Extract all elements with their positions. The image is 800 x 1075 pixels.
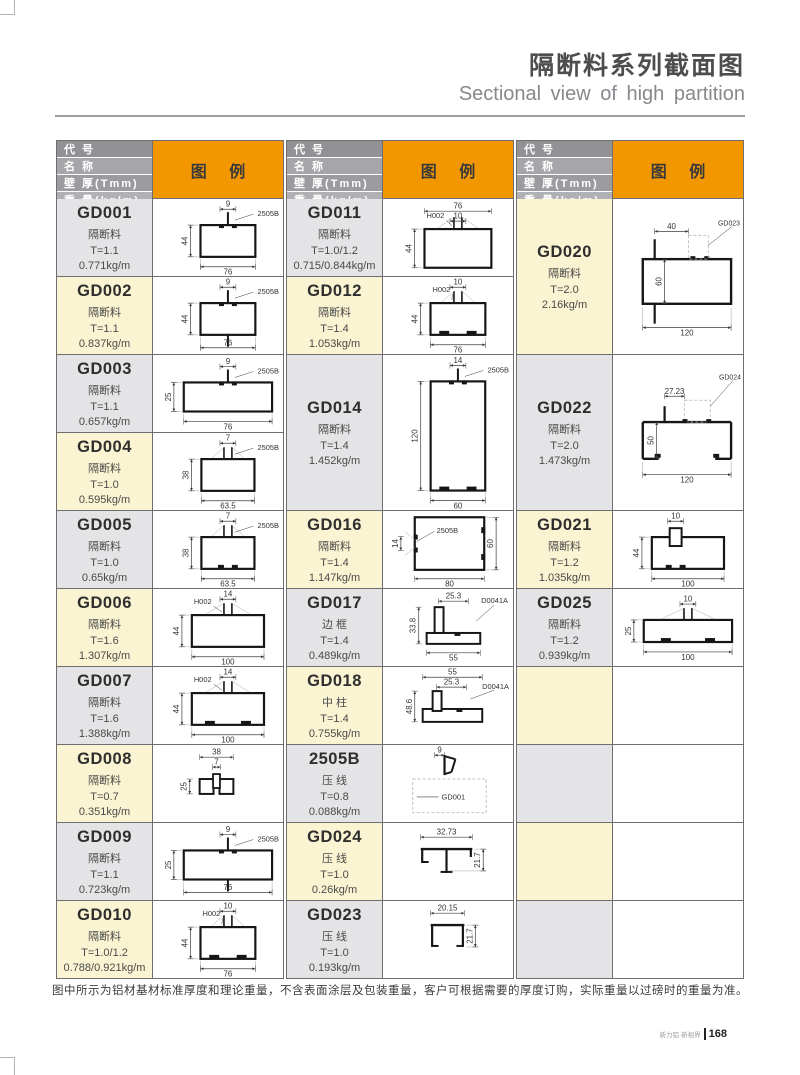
product-weight: 0.595kg/m [79, 494, 130, 506]
page-corner-mark-top-left [0, 0, 15, 15]
table-row: GD021隔断料T=1.21.035kg/m4410010 [517, 510, 743, 588]
product-code: GD011 [308, 204, 362, 223]
table-row [517, 822, 743, 900]
svg-text:2505B: 2505B [258, 835, 280, 844]
brand-text: 新力铝·新视界 [659, 1029, 700, 1039]
product-weight: 1.053kg/m [309, 338, 360, 350]
svg-text:76: 76 [224, 422, 233, 431]
table-row: GD009隔断料T=1.10.723kg/m257692505B [57, 822, 283, 900]
profile-table: 代 号名 称壁 厚(Tmm)重 量(kg/m)图 例GD001隔断料T=1.10… [56, 140, 744, 979]
table-row [517, 900, 743, 978]
product-thickness: T=1.4 [320, 557, 348, 569]
svg-text:2505B: 2505B [258, 367, 280, 376]
product-info-cell: GD003隔断料T=1.10.657kg/m [57, 355, 153, 432]
profile-drawing-cell: 12060142505B [383, 355, 513, 510]
product-weight: 0.65kg/m [82, 572, 127, 584]
product-name: 隔断料 [88, 850, 121, 866]
profile-column-2: 代 号名 称壁 厚(Tmm)重 量(kg/m)图 例GD011隔断料T=1.0/… [286, 140, 514, 979]
column-header-label: 名 称 [287, 158, 382, 175]
product-info-cell: GD023压 线T=1.00.193kg/m [287, 901, 383, 978]
profile-drawing-GD020: GD0234060120 [613, 199, 743, 354]
column-header-label: 代 号 [287, 141, 382, 158]
page-number: 168 [704, 1028, 727, 1040]
product-thickness: T=0.7 [90, 791, 118, 803]
svg-text:38: 38 [212, 748, 221, 757]
svg-text:55: 55 [448, 668, 457, 677]
column-header-labels: 代 号名 称壁 厚(Tmm)重 量(kg/m) [57, 141, 153, 198]
product-name: 隔断料 [88, 694, 121, 710]
column-header: 代 号名 称壁 厚(Tmm)重 量(kg/m)图 例 [57, 141, 283, 198]
product-info-cell: GD018中 柱T=1.40.755kg/m [287, 667, 383, 744]
profile-drawing-cell: 38725 [153, 745, 283, 822]
profile-drawing-GD007: 4410014H002 [153, 667, 283, 744]
profile-drawing-GD008: 38725 [153, 745, 283, 822]
svg-text:GD024: GD024 [719, 374, 741, 381]
product-code: GD001 [77, 204, 132, 223]
product-thickness: T=1.1 [90, 245, 118, 257]
svg-text:38: 38 [181, 470, 190, 479]
product-weight: 1.452kg/m [309, 455, 360, 467]
product-code: GD012 [307, 282, 362, 301]
svg-text:44: 44 [181, 938, 190, 947]
product-weight: 1.388kg/m [79, 728, 130, 740]
profile-drawing-2505B: 9GD001 [383, 745, 513, 822]
svg-text:10: 10 [454, 278, 463, 287]
table-row: GD002隔断料T=1.10.837kg/m447692505B [57, 276, 283, 354]
column-header-label: 名 称 [517, 158, 612, 175]
product-weight: 0.837kg/m [79, 338, 130, 350]
product-code: GD010 [77, 906, 132, 925]
product-name: 隔断料 [88, 460, 121, 476]
product-code: GD004 [77, 438, 132, 457]
profile-drawing-GD011: 441076H002 [383, 199, 513, 276]
table-row: GD001隔断料T=1.10.771kg/m447692505B [57, 198, 283, 276]
svg-text:21.7: 21.7 [473, 852, 482, 867]
svg-text:D0041A: D0041A [481, 596, 508, 605]
table-row: 2505B压 线T=0.80.088kg/m9GD001 [287, 744, 513, 822]
svg-text:25: 25 [164, 860, 173, 869]
profile-drawing-cell: 441076H002 [383, 199, 513, 276]
profile-drawing-cell: 2510010 [613, 589, 743, 666]
svg-text:100: 100 [221, 658, 235, 666]
product-thickness: T=1.4 [320, 713, 348, 725]
table-row: GD008隔断料T=0.70.351kg/m38725 [57, 744, 283, 822]
product-name: 隔断料 [88, 928, 121, 944]
svg-text:D0041A: D0041A [482, 682, 509, 691]
product-code: GD009 [77, 828, 132, 847]
product-name: 隔断料 [88, 226, 121, 242]
svg-text:44: 44 [632, 548, 641, 557]
product-info-cell: GD001隔断料T=1.10.771kg/m [57, 199, 153, 276]
product-name: 压 线 [322, 772, 347, 788]
profile-column-3: 代 号名 称壁 厚(Tmm)重 量(kg/m)图 例GD020隔断料T=2.02… [516, 140, 744, 979]
product-weight: 0.489kg/m [309, 650, 360, 662]
legend-header: 图 例 [613, 141, 743, 198]
svg-text:7: 7 [214, 758, 218, 767]
svg-text:9: 9 [226, 200, 231, 209]
svg-text:38: 38 [181, 548, 190, 557]
product-info-cell: GD009隔断料T=1.10.723kg/m [57, 823, 153, 900]
product-thickness: T=1.1 [90, 869, 118, 881]
svg-text:44: 44 [181, 236, 190, 245]
product-name: 中 柱 [322, 694, 347, 710]
profile-drawing-GD010: 447610H002 [153, 901, 283, 978]
svg-text:7: 7 [226, 434, 230, 443]
svg-text:14: 14 [224, 590, 233, 599]
product-code: GD023 [307, 906, 362, 925]
product-name: 隔断料 [318, 304, 351, 320]
svg-text:76: 76 [454, 346, 463, 354]
profile-drawing-cell: 447692505B [153, 277, 283, 354]
product-thickness: T=1.0 [90, 557, 118, 569]
profile-drawing-cell: 257692505B [153, 355, 283, 432]
profile-drawing-cell [613, 823, 743, 900]
profile-drawing-GD018: 5525.3D0041A48.6 [383, 667, 513, 744]
product-code: GD024 [307, 828, 362, 847]
svg-text:GD023: GD023 [718, 220, 740, 227]
product-info-cell: GD002隔断料T=1.10.837kg/m [57, 277, 153, 354]
svg-text:44: 44 [172, 626, 181, 635]
product-info-cell: GD004隔断料T=1.00.595kg/m [57, 433, 153, 510]
table-row: GD016隔断料T=1.41.147kg/m142505B6080 [287, 510, 513, 588]
svg-text:H002: H002 [194, 597, 212, 606]
product-thickness: T=1.0 [320, 869, 348, 881]
svg-text:33.8: 33.8 [409, 617, 418, 633]
product-info-cell [517, 667, 613, 744]
product-thickness: T=1.6 [90, 713, 118, 725]
table-row: GD025隔断料T=1.20.939kg/m2510010 [517, 588, 743, 666]
profile-drawing-cell: 25.3D0041A33.855 [383, 589, 513, 666]
product-code: GD022 [537, 399, 592, 418]
product-info-cell: GD011隔断料T=1.0/1.20.715/0.844kg/m [287, 199, 383, 276]
svg-text:7: 7 [226, 512, 230, 521]
profile-drawing-GD023: 20.1521.7 [383, 901, 513, 978]
product-code: GD016 [307, 516, 362, 535]
product-info-cell: GD005隔断料T=1.00.65kg/m [57, 511, 153, 588]
product-info-cell: GD024压 线T=1.00.26kg/m [287, 823, 383, 900]
table-row: GD024压 线T=1.00.26kg/m32.7321.7 [287, 822, 513, 900]
product-info-cell [517, 901, 613, 978]
svg-text:50: 50 [647, 435, 656, 444]
product-code: GD018 [307, 672, 362, 691]
svg-text:9: 9 [226, 825, 231, 834]
product-weight: 0.755kg/m [309, 728, 360, 740]
product-weight: 0.193kg/m [309, 962, 360, 974]
svg-text:10: 10 [684, 595, 693, 604]
product-weight: 0.657kg/m [79, 416, 130, 428]
svg-text:10: 10 [671, 512, 680, 521]
svg-text:44: 44 [411, 314, 420, 323]
product-weight: 0.088kg/m [309, 806, 360, 818]
product-thickness: T=1.1 [90, 401, 118, 413]
svg-text:2505B: 2505B [258, 209, 280, 218]
profile-drawing-cell: 4410014H002 [153, 667, 283, 744]
page-title: 隔断料系列截面图 [55, 46, 745, 82]
product-weight: 1.473kg/m [539, 455, 590, 467]
product-name: 隔断料 [548, 538, 581, 554]
svg-text:76: 76 [224, 268, 233, 276]
profile-column-1: 代 号名 称壁 厚(Tmm)重 量(kg/m)图 例GD001隔断料T=1.10… [56, 140, 284, 979]
svg-text:76: 76 [454, 202, 463, 211]
table-row: GD023压 线T=1.00.193kg/m20.1521.7 [287, 900, 513, 978]
product-thickness: T=1.0 [90, 479, 118, 491]
table-row: GD014隔断料T=1.41.452kg/m12060142505B [287, 354, 513, 510]
product-weight: 1.307kg/m [79, 650, 130, 662]
product-name: 隔断料 [318, 226, 351, 242]
svg-text:60: 60 [454, 501, 463, 510]
page-footer: 新力铝·新视界 168 [659, 1028, 727, 1040]
table-row [517, 666, 743, 744]
product-name: 隔断料 [548, 421, 581, 437]
product-weight: 0.939kg/m [539, 650, 590, 662]
product-name: 压 线 [322, 850, 347, 866]
svg-text:25: 25 [624, 626, 633, 635]
column-header-label: 代 号 [57, 141, 152, 158]
product-name: 隔断料 [88, 538, 121, 554]
product-thickness: T=2.0 [550, 284, 578, 296]
product-code: GD006 [77, 594, 132, 613]
profile-drawing-cell: 3863.572505B [153, 433, 283, 510]
product-code: GD014 [307, 399, 362, 418]
product-thickness: T=2.0 [550, 440, 578, 452]
svg-text:21.7: 21.7 [465, 928, 474, 943]
product-info-cell: 2505B压 线T=0.80.088kg/m [287, 745, 383, 822]
profile-drawing-cell: 4410014H002 [153, 589, 283, 666]
profile-drawing-cell: 447610H002 [153, 901, 283, 978]
svg-text:9: 9 [226, 278, 231, 287]
profile-drawing-cell [613, 745, 743, 822]
profile-drawing-GD001: 447692505B [153, 199, 283, 276]
svg-text:40: 40 [667, 222, 676, 231]
profile-drawing-GD021: 4410010 [613, 511, 743, 588]
svg-text:100: 100 [221, 736, 235, 744]
product-weight: 0.771kg/m [79, 260, 130, 272]
footer-note: 图中所示为铝材基材标准厚度和理论重量，不含表面涂层及包装重量，客户可根据需要的厚… [0, 982, 800, 998]
svg-text:2505B: 2505B [258, 443, 280, 452]
product-weight: 2.16kg/m [542, 299, 587, 311]
product-thickness: T=1.0/1.2 [81, 947, 128, 959]
product-info-cell: GD007隔断料T=1.61.388kg/m [57, 667, 153, 744]
product-code: GD003 [77, 360, 132, 379]
table-row: GD012隔断料T=1.41.053kg/m447610H002 [287, 276, 513, 354]
product-name: 隔断料 [318, 421, 351, 437]
product-thickness: T=1.4 [320, 440, 348, 452]
table-row: GD011隔断料T=1.0/1.20.715/0.844kg/m441076H0… [287, 198, 513, 276]
column-header-label: 代 号 [517, 141, 612, 158]
profile-drawing-GD012: 447610H002 [383, 277, 513, 354]
product-thickness: T=1.1 [90, 323, 118, 335]
product-code: GD007 [77, 672, 132, 691]
legend-header: 图 例 [383, 141, 513, 198]
product-name: 隔断料 [88, 304, 121, 320]
profile-drawing-cell: GD02427.2350120 [613, 355, 743, 510]
product-code: GD017 [307, 594, 362, 613]
svg-text:H002: H002 [194, 675, 212, 684]
table-row [517, 744, 743, 822]
profile-drawing-cell: 447610H002 [383, 277, 513, 354]
legend-header: 图 例 [153, 141, 283, 198]
svg-text:100: 100 [681, 653, 695, 662]
svg-text:25: 25 [180, 781, 189, 790]
table-row: GD018中 柱T=1.40.755kg/m5525.3D0041A48.6 [287, 666, 513, 744]
profile-drawing-GD024: 32.7321.7 [383, 823, 513, 900]
svg-text:32.73: 32.73 [437, 828, 457, 837]
product-info-cell: GD021隔断料T=1.21.035kg/m [517, 511, 613, 588]
profile-drawing-GD022: GD02427.2350120 [613, 355, 743, 510]
product-code: GD005 [77, 516, 132, 535]
product-name: 隔断料 [88, 382, 121, 398]
table-row: GD003隔断料T=1.10.657kg/m257692505B [57, 354, 283, 432]
svg-text:55: 55 [449, 654, 458, 663]
profile-drawing-GD005: 3863.572505B [153, 511, 283, 588]
title-block: 隔断料系列截面图 Sectional view of high partitio… [55, 46, 745, 117]
product-info-cell: GD022隔断料T=2.01.473kg/m [517, 355, 613, 510]
svg-text:25.3: 25.3 [446, 592, 462, 601]
product-info-cell: GD025隔断料T=1.20.939kg/m [517, 589, 613, 666]
profile-drawing-GD014: 12060142505B [383, 355, 513, 510]
column-header-labels: 代 号名 称壁 厚(Tmm)重 量(kg/m) [517, 141, 613, 198]
column-header-label: 名 称 [57, 158, 152, 175]
svg-text:9: 9 [437, 746, 442, 755]
product-code: GD021 [537, 516, 592, 535]
column-header-label: 壁 厚(Tmm) [287, 175, 382, 192]
svg-text:14: 14 [454, 356, 463, 365]
page-corner-mark-bottom-left [0, 1057, 15, 1075]
table-row: GD020隔断料T=2.02.16kg/mGD0234060120 [517, 198, 743, 354]
product-code: GD008 [77, 750, 132, 769]
svg-text:120: 120 [680, 476, 694, 485]
svg-text:H002: H002 [202, 909, 220, 918]
product-thickness: T=0.8 [320, 791, 348, 803]
profile-drawing-GD006: 4410014H002 [153, 589, 283, 666]
product-name: 隔断料 [88, 616, 121, 632]
table-row: GD005隔断料T=1.00.65kg/m3863.572505B [57, 510, 283, 588]
svg-text:H002: H002 [426, 211, 444, 220]
svg-text:44: 44 [172, 704, 181, 713]
svg-text:80: 80 [445, 580, 454, 588]
column-header: 代 号名 称壁 厚(Tmm)重 量(kg/m)图 例 [287, 141, 513, 198]
profile-drawing-GD025: 2510010 [613, 589, 743, 666]
profile-drawing-cell: 257692505B [153, 823, 283, 900]
table-row: GD022隔断料T=2.01.473kg/mGD02427.2350120 [517, 354, 743, 510]
page-subtitle: Sectional view of high partition [55, 83, 745, 106]
svg-text:76: 76 [224, 338, 233, 347]
svg-text:76: 76 [224, 970, 233, 978]
svg-text:44: 44 [181, 314, 190, 323]
product-info-cell: GD006隔断料T=1.61.307kg/m [57, 589, 153, 666]
product-name: 隔断料 [548, 616, 581, 632]
svg-text:H002: H002 [432, 285, 450, 294]
column-header-label: 壁 厚(Tmm) [57, 175, 152, 192]
profile-drawing-GD009: 257692505B [153, 823, 283, 900]
product-weight: 1.035kg/m [539, 572, 590, 584]
product-weight: 0.715/0.844kg/m [294, 260, 376, 272]
product-name: 压 线 [322, 928, 347, 944]
profile-drawing-GD016: 142505B6080 [383, 511, 513, 588]
column-header-label: 壁 厚(Tmm) [517, 175, 612, 192]
product-weight: 1.147kg/m [309, 572, 360, 584]
svg-text:27.23: 27.23 [665, 387, 685, 396]
product-info-cell: GD014隔断料T=1.41.452kg/m [287, 355, 383, 510]
svg-text:2505B: 2505B [258, 521, 280, 530]
profile-drawing-GD004: 3863.572505B [153, 433, 283, 510]
svg-text:76: 76 [224, 883, 233, 892]
column-header: 代 号名 称壁 厚(Tmm)重 量(kg/m)图 例 [517, 141, 743, 198]
profile-drawing-cell: 32.7321.7 [383, 823, 513, 900]
product-thickness: T=1.2 [550, 635, 578, 647]
product-info-cell: GD012隔断料T=1.41.053kg/m [287, 277, 383, 354]
profile-drawing-GD002: 447692505B [153, 277, 283, 354]
profile-drawing-cell: GD0234060120 [613, 199, 743, 354]
profile-drawing-cell [613, 901, 743, 978]
svg-text:44: 44 [405, 243, 414, 252]
product-thickness: T=1.4 [320, 635, 348, 647]
profile-drawing-cell: 142505B6080 [383, 511, 513, 588]
svg-text:20.15: 20.15 [438, 904, 458, 913]
svg-text:100: 100 [681, 580, 695, 588]
svg-text:63.5: 63.5 [220, 580, 236, 588]
svg-text:25.3: 25.3 [444, 678, 460, 687]
svg-text:2505B: 2505B [258, 287, 280, 296]
svg-text:120: 120 [411, 429, 420, 443]
product-name: 隔断料 [318, 538, 351, 554]
table-row: GD006隔断料T=1.61.307kg/m4410014H002 [57, 588, 283, 666]
product-weight: 0.788/0.921kg/m [64, 962, 146, 974]
product-thickness: T=1.4 [320, 323, 348, 335]
product-info-cell [517, 745, 613, 822]
svg-text:60: 60 [655, 276, 664, 285]
product-thickness: T=1.0/1.2 [311, 245, 358, 257]
product-name: 隔断料 [548, 265, 581, 281]
profile-drawing-cell [613, 667, 743, 744]
product-info-cell [517, 823, 613, 900]
svg-text:63.5: 63.5 [220, 502, 236, 510]
product-info-cell: GD010隔断料T=1.0/1.20.788/0.921kg/m [57, 901, 153, 978]
svg-text:10: 10 [224, 902, 233, 911]
profile-drawing-cell: 3863.572505B [153, 511, 283, 588]
profile-drawing-GD003: 257692505B [153, 355, 283, 432]
product-thickness: T=1.6 [90, 635, 118, 647]
table-row: GD007隔断料T=1.61.388kg/m4410014H002 [57, 666, 283, 744]
profile-drawing-cell: 9GD001 [383, 745, 513, 822]
product-code: 2505B [309, 750, 360, 769]
svg-text:14: 14 [224, 668, 233, 677]
product-info-cell: GD017边 框T=1.40.489kg/m [287, 589, 383, 666]
table-row: GD017边 框T=1.40.489kg/m25.3D0041A33.855 [287, 588, 513, 666]
product-name: 隔断料 [88, 772, 121, 788]
svg-text:120: 120 [680, 329, 694, 338]
svg-text:10: 10 [454, 212, 463, 221]
profile-drawing-cell: 4410010 [613, 511, 743, 588]
product-info-cell: GD020隔断料T=2.02.16kg/m [517, 199, 613, 354]
svg-text:14: 14 [391, 539, 400, 548]
product-code: GD002 [77, 282, 132, 301]
svg-text:2505B: 2505B [437, 526, 459, 535]
svg-text:2505B: 2505B [488, 365, 510, 374]
product-code: GD025 [537, 594, 592, 613]
product-thickness: T=1.2 [550, 557, 578, 569]
svg-text:9: 9 [226, 357, 231, 366]
product-info-cell: GD016隔断料T=1.41.147kg/m [287, 511, 383, 588]
table-row: GD004隔断料T=1.00.595kg/m3863.572505B [57, 432, 283, 510]
product-code: GD020 [537, 243, 592, 262]
svg-text:GD001: GD001 [442, 792, 466, 801]
profile-drawing-cell: 20.1521.7 [383, 901, 513, 978]
svg-text:48.6: 48.6 [405, 698, 414, 714]
product-name: 边 框 [322, 616, 347, 632]
profile-drawing-cell: 447692505B [153, 199, 283, 276]
product-thickness: T=1.0 [320, 947, 348, 959]
